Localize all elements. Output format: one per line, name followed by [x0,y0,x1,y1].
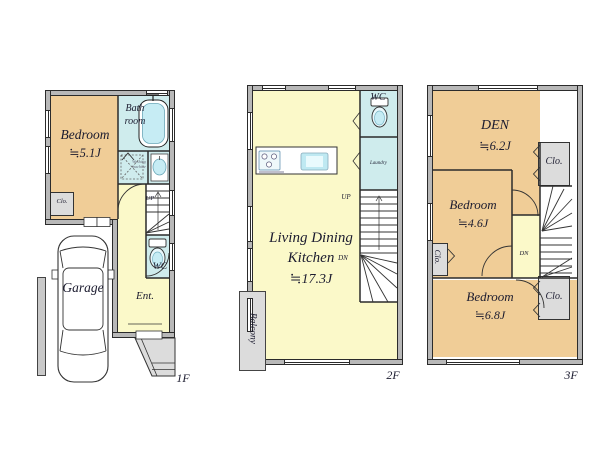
f3-floor-label: 3F [556,369,586,383]
f3-hall [512,215,540,278]
f1-washer-note-2: machine [132,165,146,170]
f3-stairs [540,186,572,278]
f1-up-label: UP [141,195,159,202]
f3-bedroom1-label: Bedroom [436,198,510,213]
floorplan-canvas: Bedroom ≒5.1J Bath room Clo. UP WC Ent. … [0,0,600,449]
car-icon [52,236,114,382]
f3-dn-label: DN [510,250,538,257]
f1-floor-label: 1F [168,372,198,386]
f3-den-nook [512,170,540,215]
f2-laundry-label: Laundry [360,161,397,167]
f2-ldk-area: ≒17.3J [250,272,372,288]
f1-bedroom-label: Bedroom [50,127,120,143]
window [169,190,175,216]
f1-bedroom-area: ≒5.1J [50,146,120,160]
f1-bath-label-2: room [117,116,153,128]
f3-den-label: DEN [460,118,530,134]
window [427,115,433,157]
f2-wall-right [397,85,403,365]
f2-wc-label: WC [364,92,392,104]
f1-entrance [118,278,169,332]
f3-bedroom2-area: ≒6.8J [448,309,532,323]
window [284,359,350,365]
f2-floor-label: 2F [378,369,408,383]
f1-stairs [146,184,169,235]
f2-up-label: UP [335,193,357,201]
window [446,359,520,365]
f2-dn-label: DN [332,254,354,262]
f1-garage-fence [37,277,46,376]
f3-den-area: ≒6.2J [460,139,530,153]
f1-wall-bottom-left [45,219,118,225]
window [169,108,175,142]
window [328,85,356,91]
f3-bedroom1-area: ≒4.6J [436,217,510,231]
f1-bath-label-1: Bath [117,103,153,115]
window [478,85,538,91]
f3-bedroom2-label: Bedroom [448,290,532,305]
window [247,112,253,150]
f1-garage-label: Garage [48,280,118,296]
f3-closet-left-label: Clo. [432,232,442,282]
f3-closet-top-label: Clo. [538,156,570,168]
window [146,90,168,96]
f3-closet-bottom-label: Clo. [538,291,570,303]
f1-wall-column-bottom [112,332,175,338]
f1-entrance-label: Ent. [127,290,163,303]
window [262,85,286,91]
f2-balcony-label: Balcony [247,290,258,366]
f1-wc-label: WC [150,262,170,273]
f3-wall-right [577,85,583,365]
f2-ldk-label-1: Living Dining [250,230,372,247]
f1-closet-label: Clo. [50,198,74,205]
f1-wall-column-left [112,219,118,338]
f1-washroom [148,151,169,184]
